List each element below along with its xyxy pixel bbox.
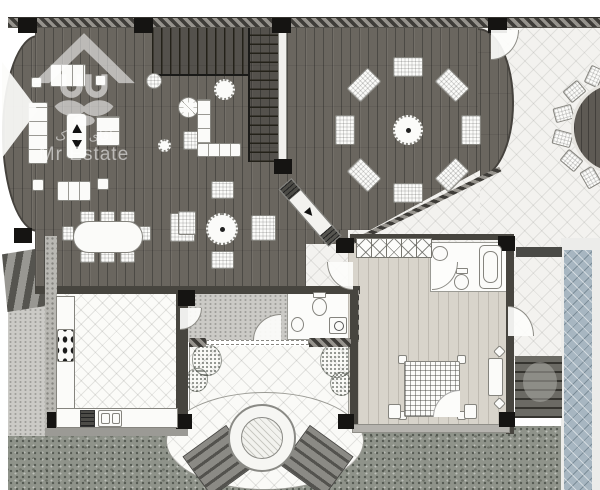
game-chair xyxy=(251,215,276,241)
entry-threshold xyxy=(206,340,309,345)
reception-chair xyxy=(393,57,423,77)
reception-chair xyxy=(335,115,355,145)
watermark-text-persian: آقای املاک xyxy=(55,128,113,144)
column xyxy=(336,238,354,253)
stair-upper-flight xyxy=(152,28,248,76)
stair-lower-flight xyxy=(248,28,278,162)
watermark: آقای املاک Mr Estate xyxy=(18,24,150,194)
reception-chair xyxy=(461,115,481,145)
washer-drum xyxy=(334,321,344,331)
kitchen-south-wall xyxy=(45,428,188,436)
direction-arrow-icon xyxy=(304,207,315,218)
kitchen-sink xyxy=(98,410,122,427)
table-centre xyxy=(220,227,225,232)
dresser xyxy=(488,358,503,396)
south-hall-wall xyxy=(35,286,360,294)
column xyxy=(178,290,195,306)
pool-deck-steps xyxy=(515,356,562,418)
column xyxy=(499,412,515,427)
toilet-bowl xyxy=(312,298,327,316)
bed xyxy=(404,361,460,417)
dishwasher xyxy=(80,410,95,427)
small-round-table xyxy=(158,139,171,152)
bedroom-south-wall xyxy=(352,424,510,433)
game-chair xyxy=(178,211,196,235)
entry-circle-inner xyxy=(241,417,283,459)
nightstand xyxy=(388,404,401,419)
game-chair xyxy=(211,181,234,199)
swimming-pool xyxy=(564,250,592,490)
bed-blanket-fold xyxy=(433,390,460,417)
watermark-text-latin: Mr Estate xyxy=(39,144,129,166)
floor-plan: آقای املاک Mr Estate xyxy=(0,0,600,490)
bathtub xyxy=(479,245,502,289)
sink-basin xyxy=(101,413,110,424)
reception-chair xyxy=(393,183,423,203)
game-table xyxy=(206,213,238,245)
patio-screen-wall xyxy=(516,247,562,257)
nightstand xyxy=(464,404,477,419)
shrub xyxy=(330,372,352,396)
wardrobe-closet xyxy=(356,238,432,258)
toilet-bowl xyxy=(454,274,469,290)
spoke-table xyxy=(178,97,199,118)
deck-shadow xyxy=(523,362,557,402)
game-chair xyxy=(211,251,234,269)
dining-table xyxy=(73,221,143,253)
sink xyxy=(432,246,448,261)
column xyxy=(14,228,32,243)
court-wall-left xyxy=(189,338,206,347)
bathtub-basin xyxy=(483,251,498,283)
house-face-logo-icon xyxy=(26,24,142,128)
table-centre xyxy=(406,128,411,133)
washing-machine xyxy=(329,317,347,334)
column xyxy=(274,159,292,174)
sink-basin xyxy=(112,413,120,424)
round-side-table xyxy=(214,79,235,100)
corner-sofa-horizontal xyxy=(197,143,241,157)
stair-stringer xyxy=(278,28,287,162)
stove xyxy=(57,329,74,362)
column xyxy=(272,18,291,33)
bedroom-west-wall xyxy=(350,288,358,428)
court-wall-right xyxy=(309,338,351,347)
column xyxy=(176,414,192,429)
reception-round-table xyxy=(393,115,423,145)
sink xyxy=(291,317,304,332)
column xyxy=(338,414,354,429)
